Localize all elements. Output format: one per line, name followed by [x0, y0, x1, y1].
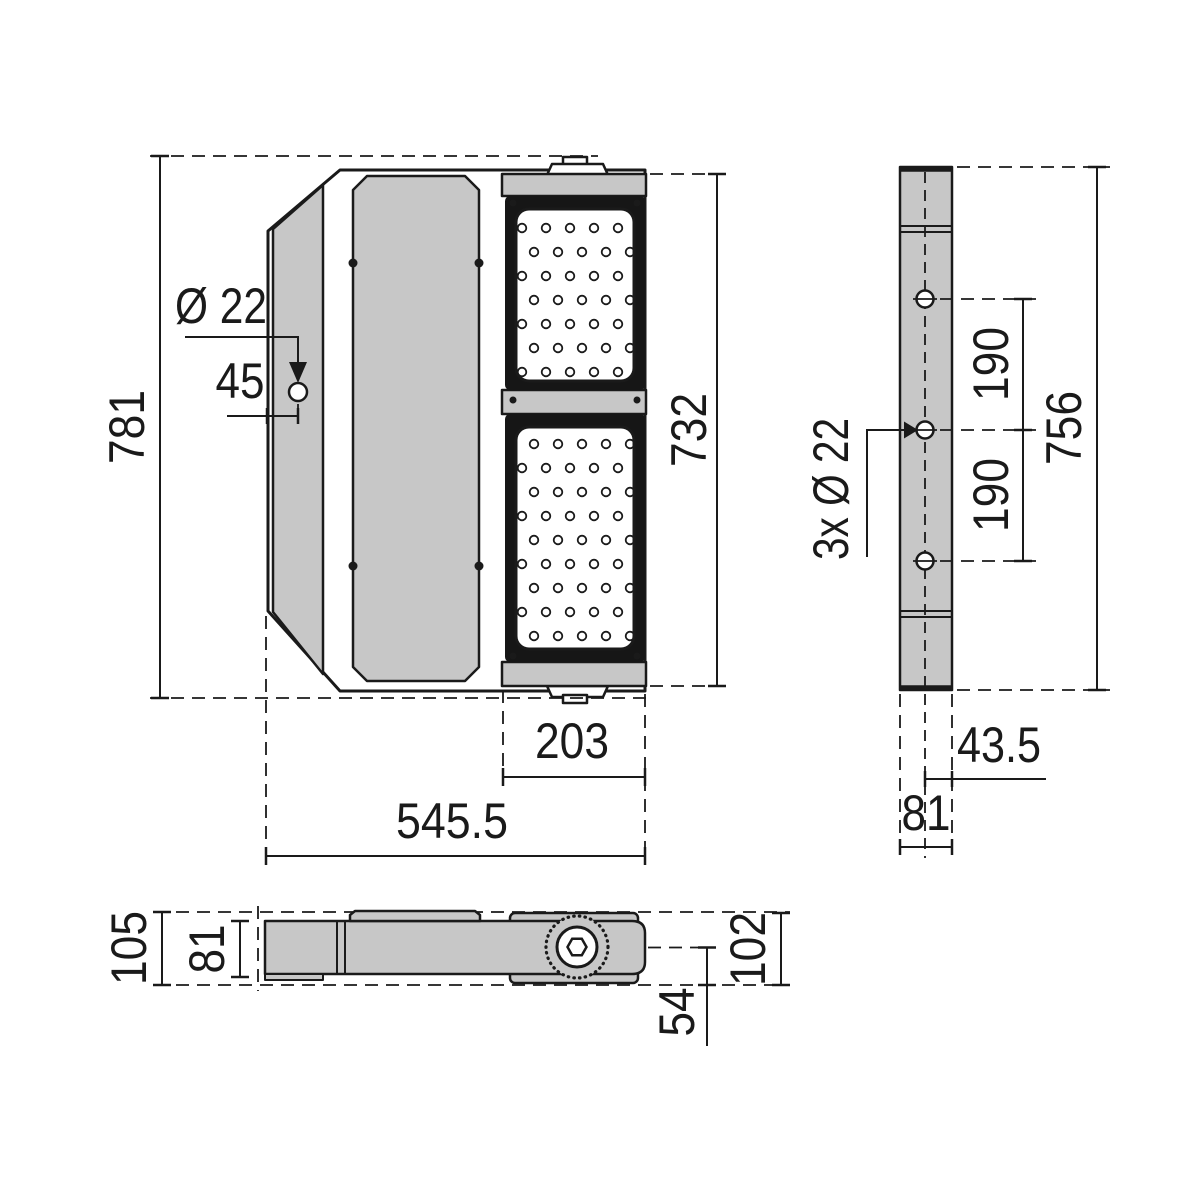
led-panel-lower [516, 427, 634, 649]
dim-bottom-pivot-offset: 54 [649, 948, 716, 1047]
hinge-pin-dot [475, 259, 484, 268]
dim-side-overall-height: 756 [1036, 167, 1106, 690]
mounting-lug-bottom [547, 686, 608, 703]
dim-bottom-housing-depth-label: 81 [179, 925, 235, 974]
dim-bottom-pivot-offset-label: 54 [649, 988, 705, 1037]
dim-front-module-height: 732 [661, 174, 726, 686]
dim-front-overall-width: 545.5 [266, 793, 645, 865]
dim-side-depth-label: 81 [902, 785, 951, 841]
dim-front-overall-height: 781 [99, 156, 169, 698]
bottom-back-box-tab [350, 911, 480, 921]
mounting-lug-top [547, 157, 608, 175]
dim-bottom-overall-depth: 105 [101, 911, 171, 985]
technical-drawing: 781 732 203 545.5 Ø 22 [0, 0, 1200, 1200]
dim-bottom-overall-depth-label: 105 [101, 911, 157, 985]
dim-front-module-width-label: 203 [535, 713, 609, 769]
dim-side-hole-plane-offset-label: 43.5 [957, 717, 1041, 773]
front-mounting-hole [289, 383, 307, 401]
front-back-box [353, 176, 479, 681]
led-bottom-cap [502, 662, 646, 686]
dim-side-depth: 81 [900, 785, 952, 855]
dim-side-overall-height-label: 756 [1036, 391, 1092, 465]
dim-side-hole-spacing-lower-label: 190 [963, 458, 1019, 532]
side-view: 190 190 756 3x Ø 22 43.5 81 [803, 167, 1110, 858]
front-left-face [273, 185, 323, 674]
hinge-pin-dot [475, 562, 484, 571]
front-view: 781 732 203 545.5 Ø 22 [99, 156, 734, 865]
bottom-housing-lip [265, 974, 323, 980]
side-holes-label: 3x Ø 22 [803, 418, 859, 560]
hinge-pin-dot [349, 562, 358, 571]
dim-front-hole-offset-label: 45 [216, 353, 265, 409]
dim-bottom-housing-depth: 81 [179, 921, 249, 977]
bottom-view: 105 81 102 54 [101, 906, 790, 1046]
front-hole-diameter-label: Ø 22 [175, 278, 267, 334]
led-divider [502, 390, 646, 414]
led-module-block [502, 174, 646, 686]
dim-bottom-bracket-height-label: 102 [720, 912, 776, 986]
hinge-pin-dot [349, 259, 358, 268]
dim-front-module-height-label: 732 [661, 393, 717, 467]
technical-drawing-page: 781 732 203 545.5 Ø 22 [0, 0, 1200, 1200]
led-top-cap [502, 174, 646, 196]
bottom-hinge-knuckle [546, 916, 608, 978]
dim-bottom-bracket-height: 102 [720, 912, 790, 986]
dim-side-hole-spacing-upper-label: 190 [963, 327, 1019, 401]
hex-bolt-head [568, 939, 587, 955]
dim-side-hole-plane-offset: 43.5 [925, 717, 1046, 787]
dim-front-overall-height-label: 781 [99, 390, 155, 464]
dim-front-overall-width-label: 545.5 [396, 793, 508, 849]
led-panel-upper [516, 209, 634, 381]
dim-front-module-width: 203 [503, 713, 645, 786]
